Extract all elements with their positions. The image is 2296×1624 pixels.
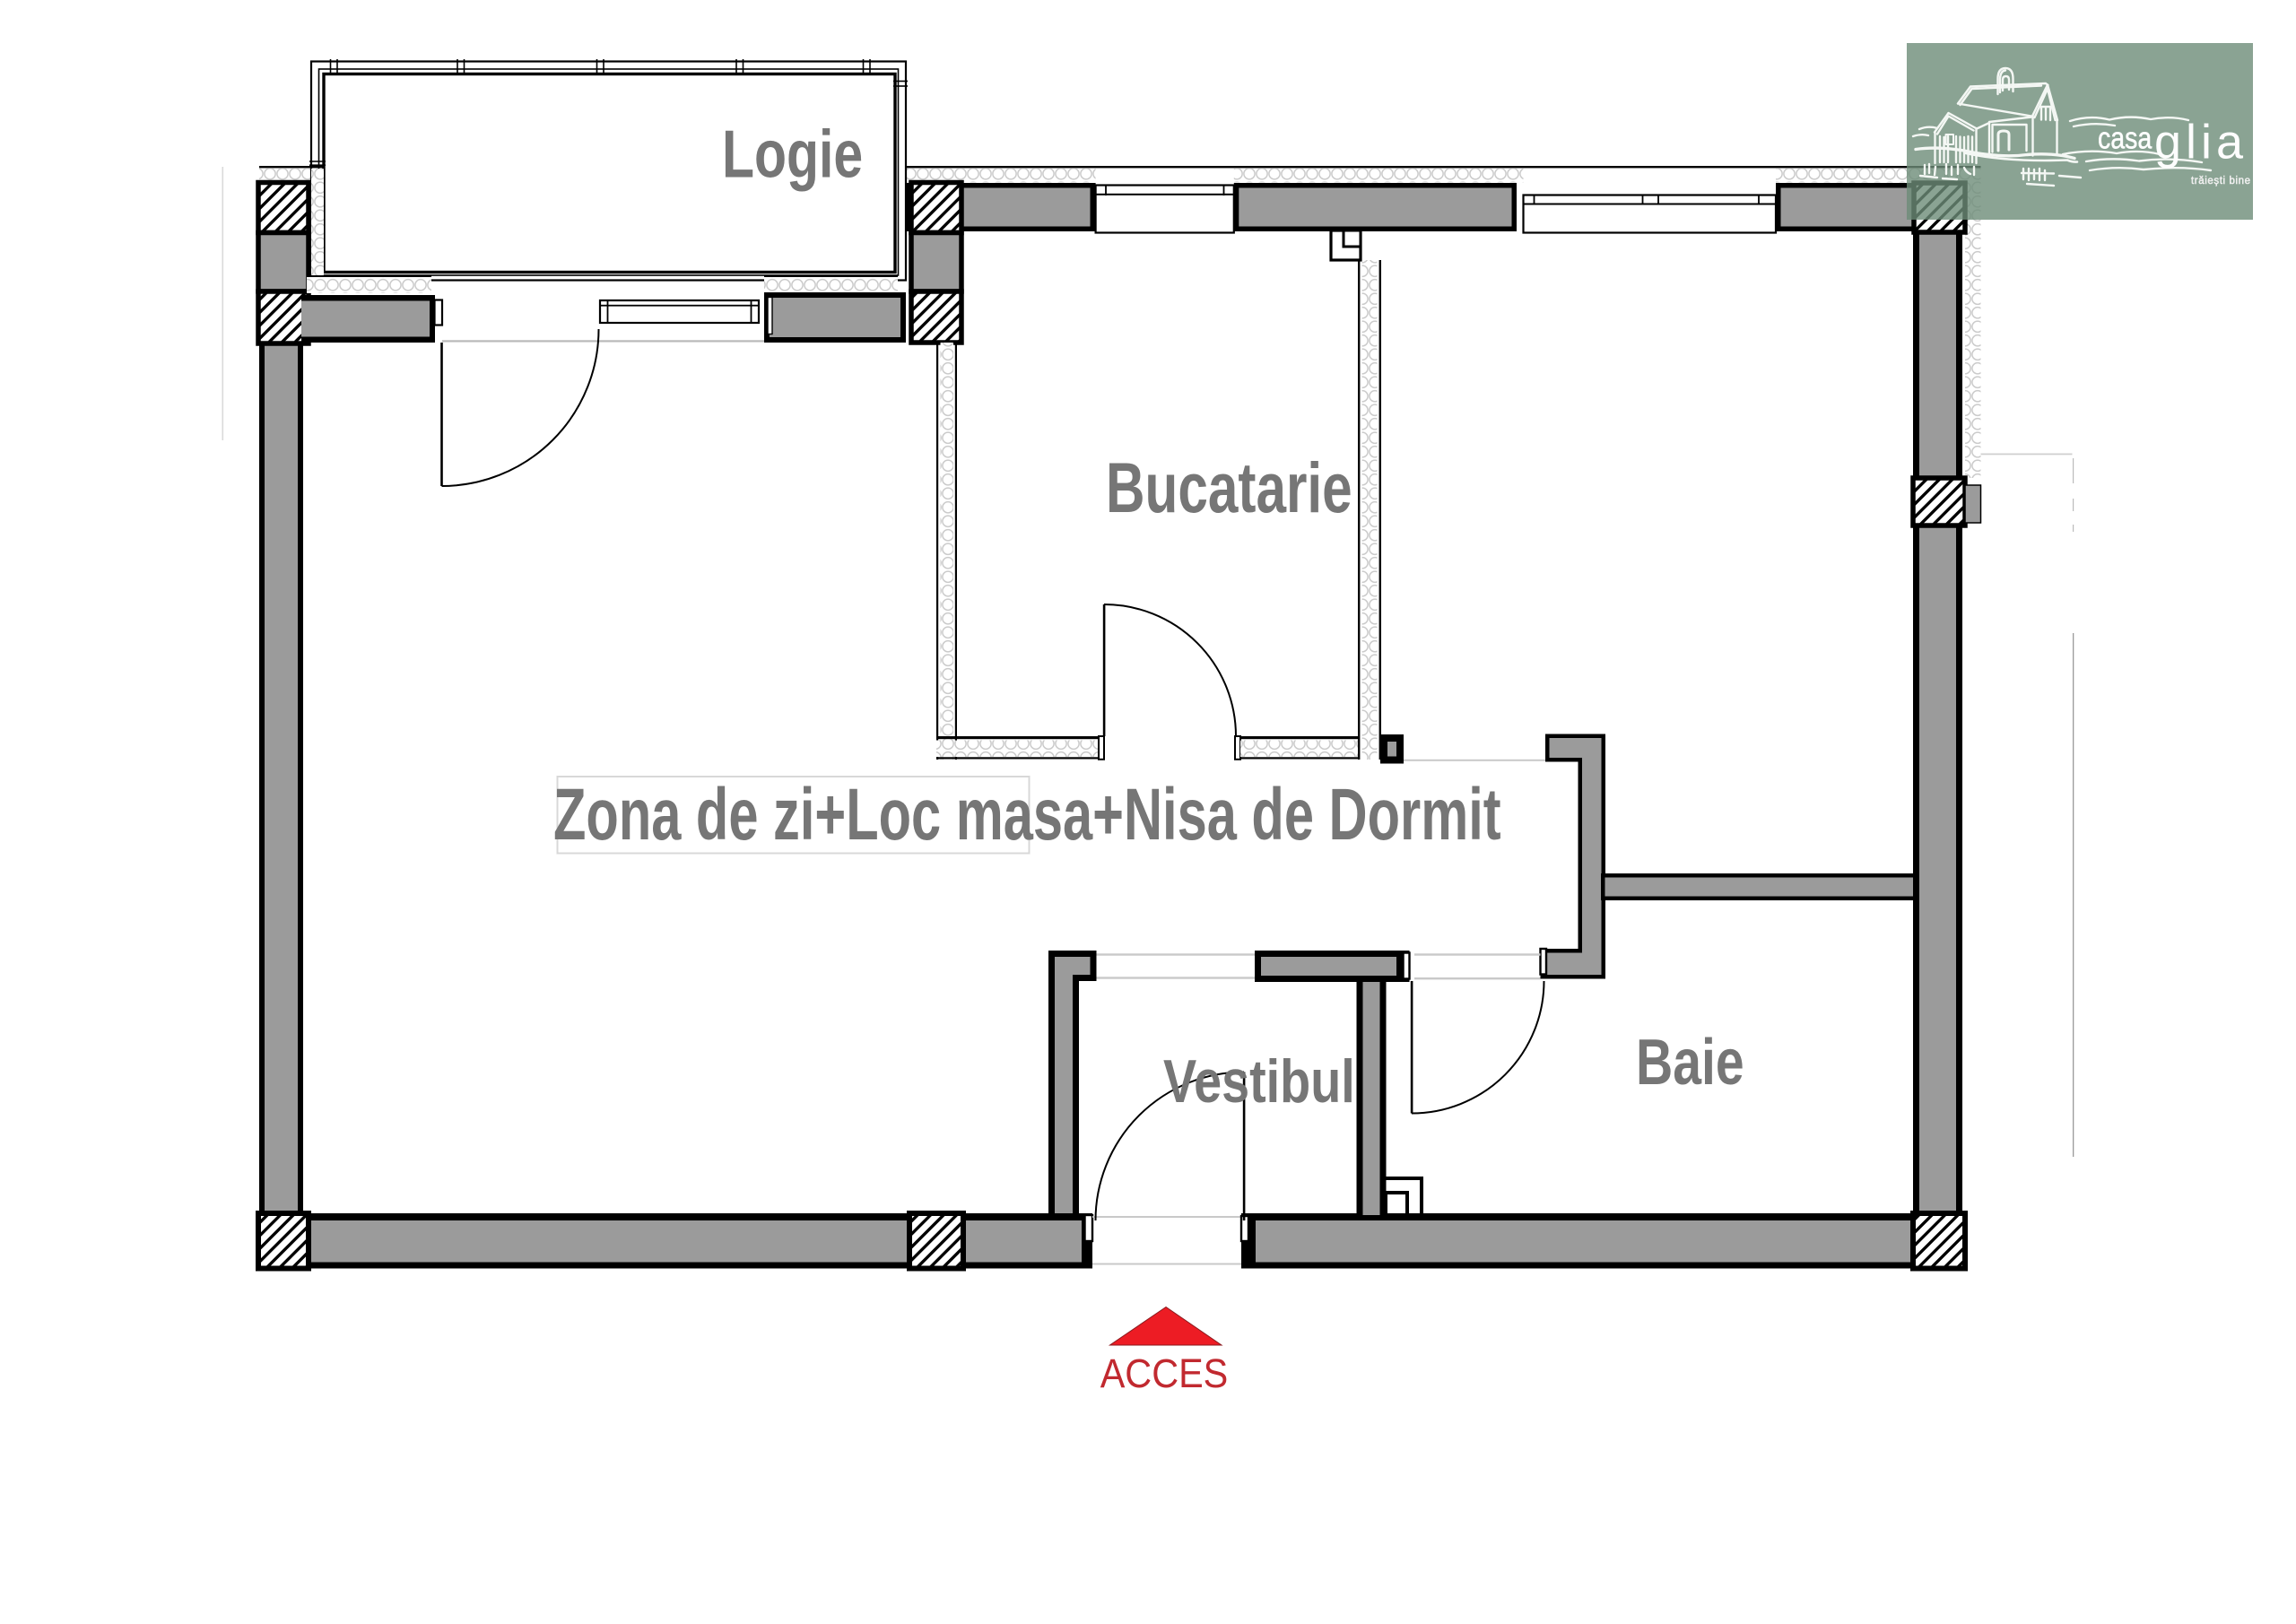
svg-text:ACCES: ACCES	[1100, 1351, 1229, 1396]
svg-text:glia: glia	[2154, 116, 2248, 169]
svg-text:Logie: Logie	[722, 117, 863, 192]
svg-text:Zona de zi+Loc masa+Nisa de Do: Zona de zi+Loc masa+Nisa de Dormit	[553, 774, 1501, 856]
svg-text:casa: casa	[2098, 121, 2152, 155]
svg-text:Vestibul: Vestibul	[1163, 1048, 1355, 1116]
svg-text:Baie: Baie	[1636, 1025, 1744, 1098]
svg-text:Bucatarie: Bucatarie	[1106, 448, 1352, 526]
svg-text:trăiești bine: trăiești bine	[2191, 176, 2251, 187]
